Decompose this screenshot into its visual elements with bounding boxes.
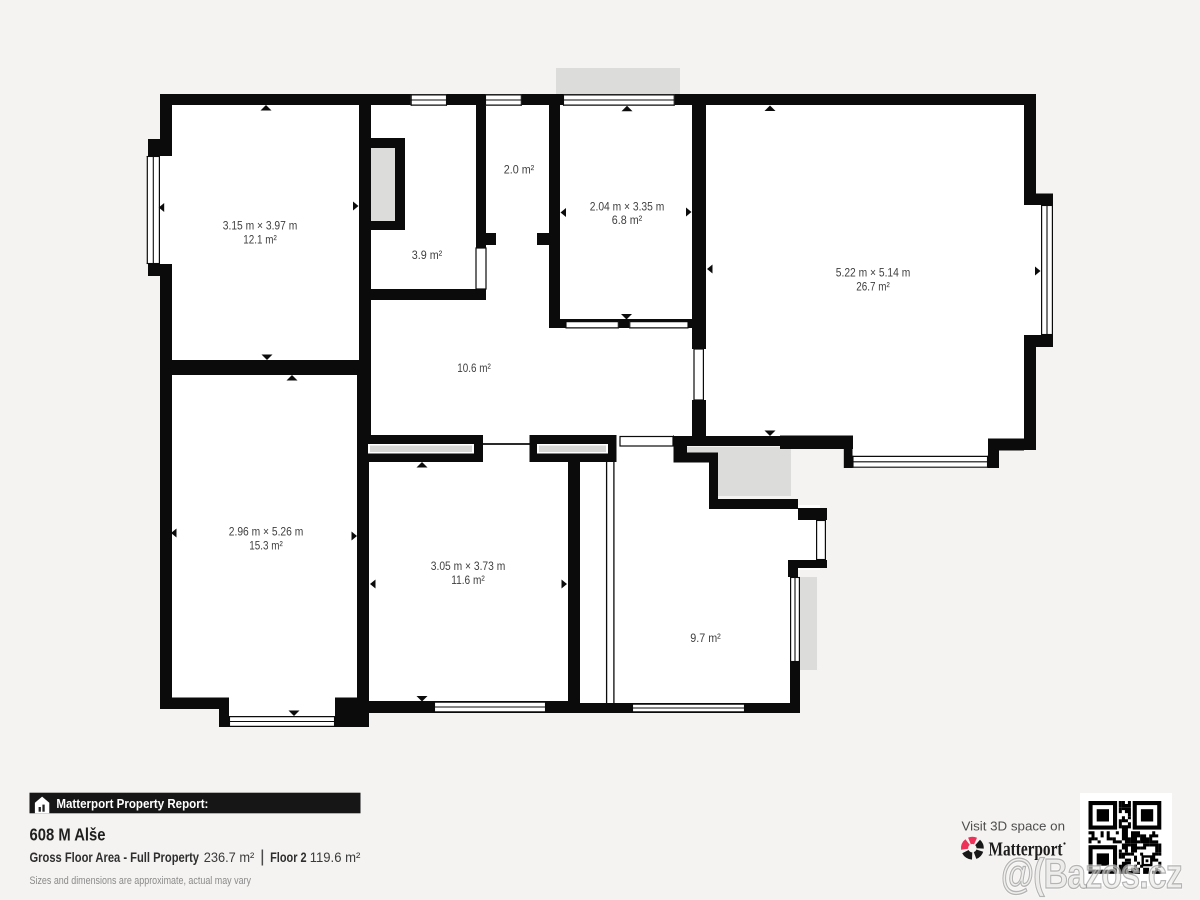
svg-text:119.6 m²: 119.6 m² [310, 850, 361, 865]
svg-text:9.7 m²: 9.7 m² [690, 631, 721, 645]
svg-text:608 M Alše: 608 M Alše [30, 825, 106, 845]
svg-text:Floor 2: Floor 2 [270, 850, 307, 865]
svg-text:Visit 3D space on: Visit 3D space on [962, 819, 1066, 834]
svg-text:2.0 m²: 2.0 m² [504, 163, 535, 177]
svg-text:2.04 m × 3.35 m: 2.04 m × 3.35 m [590, 200, 665, 214]
svg-text:2.96 m × 5.26 m: 2.96 m × 5.26 m [229, 525, 304, 539]
svg-text:10.6 m²: 10.6 m² [457, 361, 491, 375]
svg-text:15.3 m²: 15.3 m² [249, 539, 283, 553]
svg-text:Gross Floor Area - Full Proper: Gross Floor Area - Full Property [30, 850, 200, 865]
svg-text:236.7 m²: 236.7 m² [204, 850, 255, 865]
svg-text:11.6 m²: 11.6 m² [451, 573, 485, 587]
svg-text:6.8 m²: 6.8 m² [612, 213, 643, 227]
svg-text:3.9 m²: 3.9 m² [412, 248, 443, 262]
svg-text:Sizes and dimensions are appro: Sizes and dimensions are approximate, ac… [30, 875, 252, 887]
svg-text:26.7 m²: 26.7 m² [856, 280, 890, 294]
svg-text:12.1 m²: 12.1 m² [243, 233, 277, 247]
svg-text:Matterport Property Report:: Matterport Property Report: [56, 796, 208, 811]
svg-text:@(Bazos.cz: @(Bazos.cz [1001, 850, 1182, 897]
svg-text:5.22 m × 5.14 m: 5.22 m × 5.14 m [836, 266, 911, 280]
svg-text:3.15 m × 3.97 m: 3.15 m × 3.97 m [223, 219, 298, 233]
svg-text:3.05 m × 3.73 m: 3.05 m × 3.73 m [431, 559, 506, 573]
